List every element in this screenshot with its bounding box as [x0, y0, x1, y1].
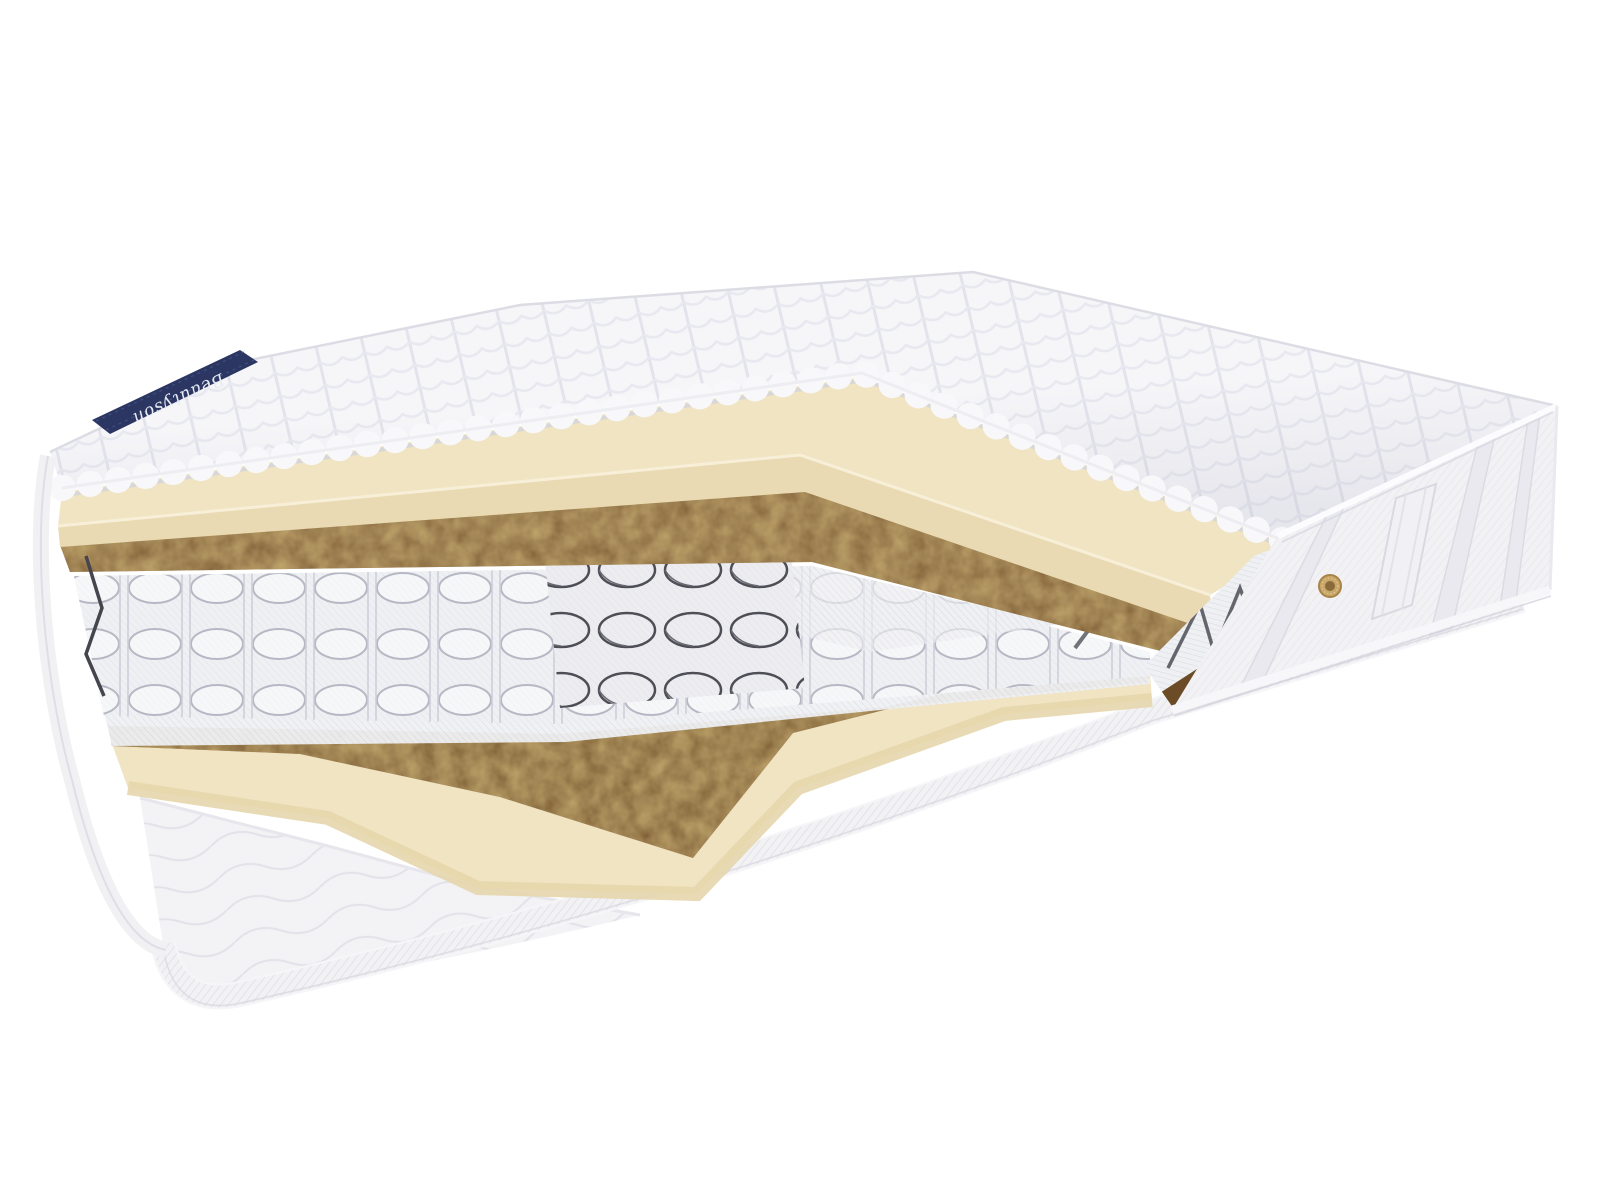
bare-springs	[545, 545, 805, 708]
mattress-cutaway-illustration: Beautyson	[0, 0, 1600, 1200]
air-vent	[1319, 575, 1341, 597]
product-photo: Beautyson	[0, 0, 1600, 1200]
